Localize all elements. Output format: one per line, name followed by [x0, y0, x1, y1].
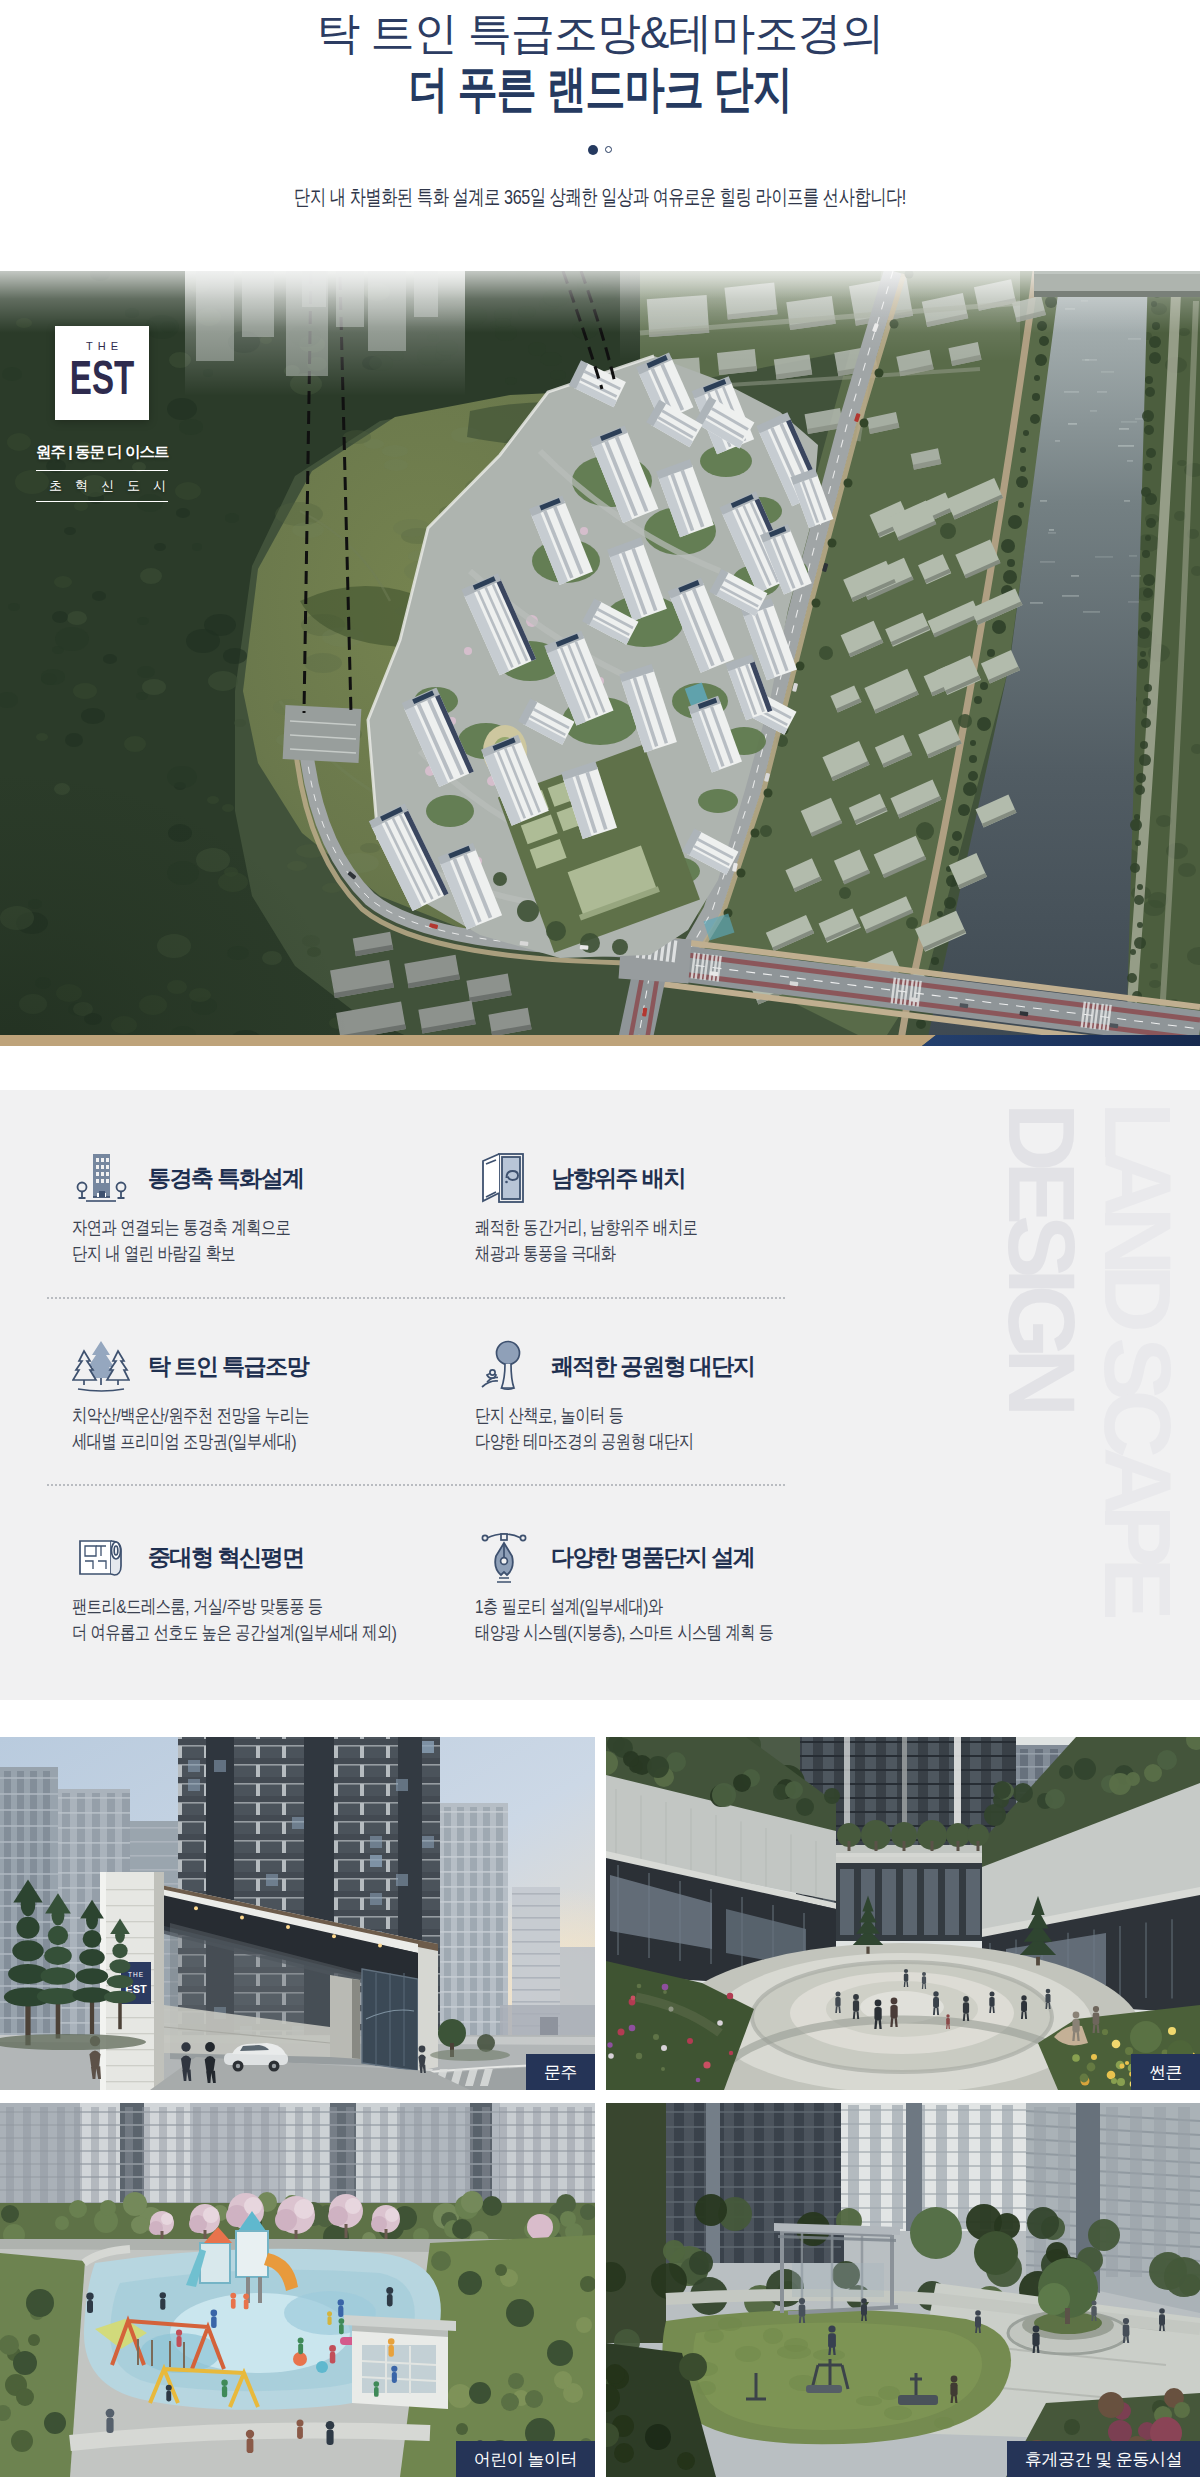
svg-text:THE: THE	[128, 1971, 144, 1978]
